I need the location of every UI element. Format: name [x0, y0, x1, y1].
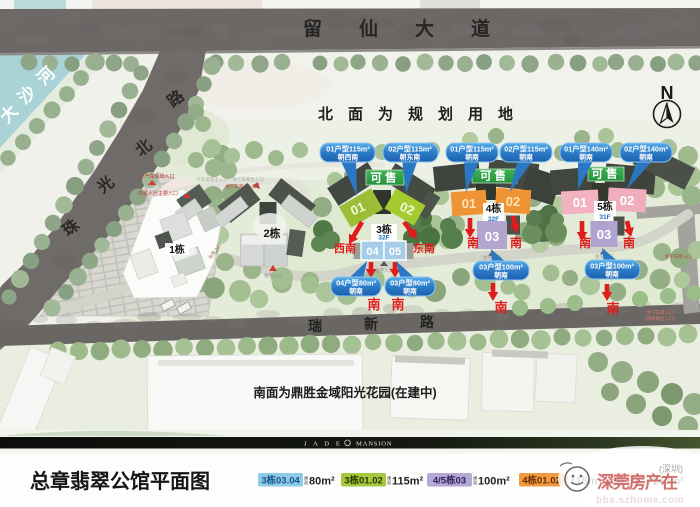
svg-text:南: 南	[510, 235, 522, 250]
svg-text:可售: 可售	[480, 169, 509, 183]
svg-text:南: 南	[494, 300, 507, 315]
svg-text:朝南: 朝南	[403, 286, 417, 295]
svg-text:朝西南: 朝西南	[338, 152, 359, 161]
svg-text:01: 01	[462, 196, 476, 211]
svg-text:02: 02	[620, 193, 634, 208]
svg-text:北面为规划用地: 北面为规划用地	[318, 105, 528, 123]
svg-text:留仙大道: 留仙大道	[303, 17, 527, 40]
svg-text:朝南: 朝南	[349, 286, 363, 295]
svg-text:01户型115m²: 01户型115m²	[450, 145, 494, 154]
svg-text:(瑞新路出入口): (瑞新路出入口)	[645, 315, 675, 322]
svg-text:汽车坡道出入口 地下车库出入口: 汽车坡道出入口 地下车库出入口	[196, 176, 264, 183]
svg-text:01: 01	[573, 195, 587, 210]
svg-text:01户型115m²: 01户型115m²	[326, 145, 370, 154]
svg-text:01户型140m²: 01户型140m²	[564, 145, 608, 154]
svg-text:南: 南	[391, 297, 404, 312]
svg-text:南: 南	[623, 235, 635, 250]
svg-text:31F: 31F	[599, 214, 610, 221]
svg-text:路: 路	[420, 314, 435, 330]
svg-text:南: 南	[367, 297, 380, 312]
svg-text:4/5栋03: 4/5栋03	[433, 475, 466, 487]
svg-text:4栋: 4栋	[486, 202, 502, 215]
svg-text:02户型140m²: 02户型140m²	[624, 145, 668, 154]
svg-text:02户型115m²: 02户型115m²	[388, 145, 432, 154]
svg-text:地下车库入口: 地下车库入口	[647, 309, 674, 316]
svg-text:可售: 可售	[592, 167, 621, 181]
svg-text:100m²: 100m²	[478, 476, 510, 488]
svg-text:05: 05	[389, 246, 401, 258]
svg-text:中星人行主要入口: 中星人行主要入口	[138, 190, 178, 197]
svg-text:朝南: 朝南	[519, 152, 533, 161]
svg-text:小汽车库出入口: 小汽车库出入口	[139, 173, 174, 180]
svg-text:03: 03	[597, 227, 611, 242]
svg-text:南: 南	[467, 235, 479, 250]
svg-text:西南: 西南	[334, 241, 356, 255]
svg-text:03户型100m²: 03户型100m²	[590, 262, 634, 271]
svg-text:(深圳): (深圳)	[659, 464, 683, 474]
svg-text:总章翡翠公馆平面图: 总章翡翠公馆平面图	[30, 469, 210, 493]
svg-text:03: 03	[485, 229, 499, 244]
svg-text:80m²: 80m²	[309, 476, 335, 488]
svg-text:3栋01.02: 3栋01.02	[344, 475, 383, 487]
svg-text:朝南: 朝南	[605, 269, 619, 278]
svg-text:02户型115m²: 02户型115m²	[504, 145, 548, 154]
svg-text:瑞: 瑞	[308, 318, 322, 334]
svg-text:可售: 可售	[371, 171, 400, 185]
svg-text:朝南: 朝南	[639, 152, 653, 161]
svg-text:2栋: 2栋	[263, 226, 280, 240]
svg-text:新: 新	[364, 316, 378, 332]
svg-text:住宅入口: 住宅入口	[264, 272, 282, 279]
svg-text:04户型80m²: 04户型80m²	[336, 279, 376, 288]
svg-text:03户型100m²: 03户型100m²	[479, 263, 523, 272]
svg-text:J A D E: J A D E	[304, 441, 343, 448]
svg-text:4栋01.02: 4栋01.02	[522, 475, 561, 487]
svg-text:深莞房产在: 深莞房产在	[597, 472, 678, 492]
svg-text:02: 02	[506, 194, 520, 209]
svg-text:南: 南	[606, 301, 619, 316]
svg-text:3栋03.04: 3栋03.04	[261, 475, 300, 487]
svg-text:东南: 东南	[413, 241, 435, 255]
svg-text:5栋: 5栋	[597, 200, 613, 213]
svg-text:朝南: 朝南	[579, 152, 593, 161]
svg-text:南面为鼎胜金域阳光花园(在建中): 南面为鼎胜金域阳光花园(在建中)	[253, 385, 436, 400]
svg-text:1栋: 1栋	[169, 243, 185, 256]
svg-text:住宅入口: 住宅入口	[375, 267, 393, 274]
svg-text:115m²: 115m²	[392, 476, 424, 488]
svg-text:朝南: 朝南	[465, 152, 479, 161]
svg-text:MANSION: MANSION	[356, 441, 392, 448]
svg-text:朝南: 朝南	[494, 270, 508, 279]
svg-text:南: 南	[579, 235, 591, 250]
svg-text:03户型80m²: 03户型80m²	[390, 279, 430, 288]
svg-text:04: 04	[366, 246, 379, 258]
svg-text:朝东南: 朝东南	[400, 152, 421, 161]
svg-text:地下车库入口: 地下车库入口	[665, 253, 692, 260]
svg-text:bbs.szhome.com: bbs.szhome.com	[596, 495, 684, 506]
